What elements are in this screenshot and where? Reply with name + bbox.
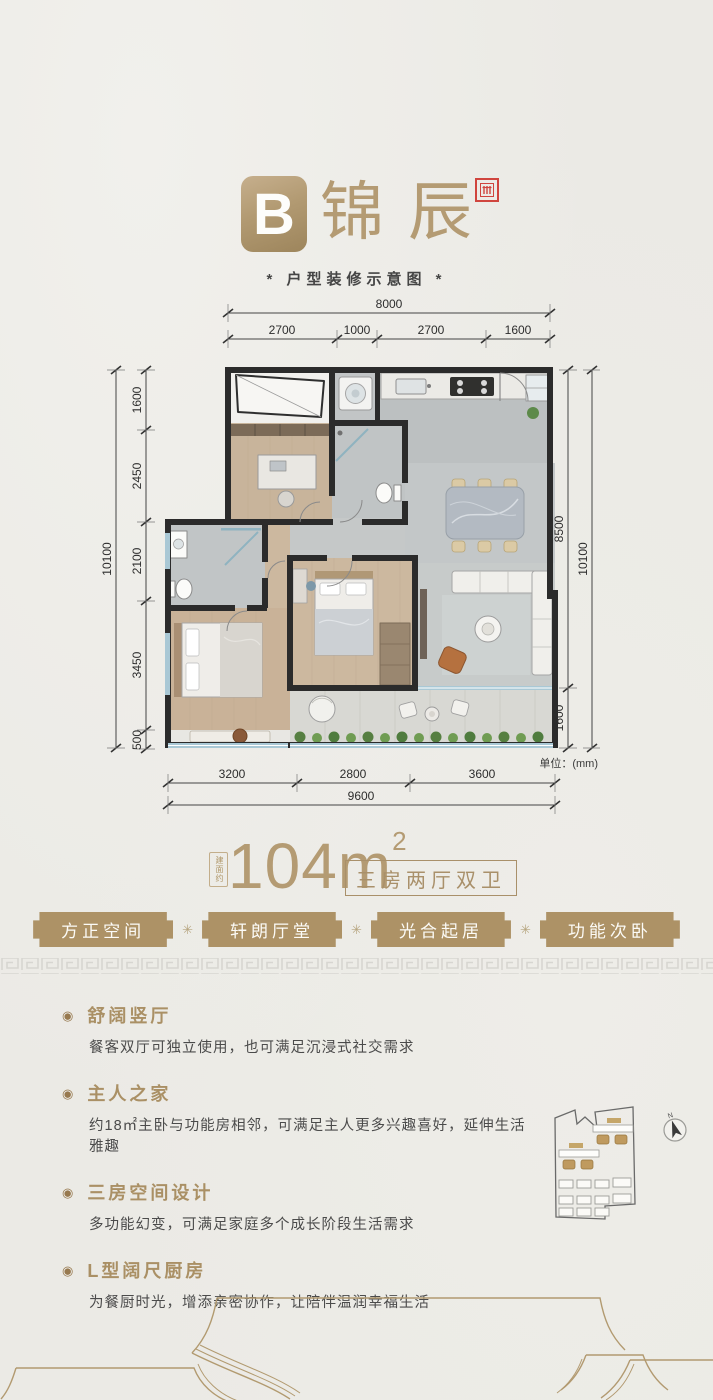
asterisk-separator: ✳	[351, 922, 362, 938]
svg-text:2800: 2800	[340, 767, 367, 781]
layout-type-box: 三房两厅双卫	[345, 860, 517, 896]
bullet-icon: ◉	[62, 1009, 73, 1022]
svg-text:3450: 3450	[130, 651, 144, 678]
feature-item: ◉ 主人之家 约18㎡主卧与功能房相邻，可满足主人更多兴趣喜好，延伸生活雅趣	[62, 1080, 532, 1156]
seal-icon	[475, 178, 499, 202]
svg-text:1600: 1600	[552, 704, 566, 731]
svg-text:1600: 1600	[130, 386, 144, 413]
svg-text:500: 500	[130, 730, 144, 750]
bullet-icon: ◉	[62, 1087, 73, 1100]
roofline-decoration	[0, 1285, 713, 1400]
svg-text:10100: 10100	[576, 542, 590, 576]
svg-text:9600: 9600	[348, 789, 375, 803]
svg-text:2700: 2700	[418, 323, 445, 337]
floorplan-svg: 8000 2700 1000 2700 1600 10100 1600 2450…	[100, 293, 600, 818]
siteplan-svg: N	[535, 1088, 707, 1240]
feature-title: 三房空间设计	[87, 1179, 213, 1205]
dining-table	[446, 479, 524, 552]
desk	[258, 455, 316, 489]
toilet	[376, 483, 392, 503]
tag-guanghe: 光合起居	[371, 912, 511, 947]
stove	[450, 377, 494, 396]
page-title: 锦辰	[320, 170, 496, 254]
asterisk-separator: ✳	[182, 922, 193, 938]
feature-item: ◉ 舒阔竖厅 餐客双厅可独立使用，也可满足沉浸式社交需求	[62, 1002, 532, 1057]
bed-secondary	[315, 571, 373, 655]
highlighted-buildings	[559, 1118, 633, 1169]
feature-desc: 约18㎡主卧与功能房相邻，可满足主人更多兴趣喜好，延伸生活雅趣	[89, 1114, 532, 1156]
svg-text:2700: 2700	[269, 323, 296, 337]
svg-text:1000: 1000	[344, 323, 371, 337]
asterisk-separator: ✳	[520, 922, 531, 938]
subtitle: * 户型装修示意图 *	[0, 268, 713, 289]
selling-point-tags: 方正空间 ✳ 轩朗厅堂 ✳ 光合起居 ✳ 功能次卧	[0, 912, 713, 947]
svg-text:8000: 8000	[376, 297, 403, 311]
ottoman	[233, 729, 247, 743]
tag-gongneng: 功能次卧	[540, 912, 680, 947]
feature-title: L型阔尺厨房	[87, 1257, 206, 1283]
svg-text:2100: 2100	[130, 547, 144, 574]
balcony-plants	[295, 732, 544, 744]
other-buildings	[559, 1178, 631, 1216]
bed-master	[174, 623, 262, 697]
area-sup: 2	[392, 826, 407, 856]
feature-title: 主人之家	[87, 1080, 171, 1106]
svg-text:8500: 8500	[552, 515, 566, 542]
feature-desc: 餐客双厅可独立使用，也可满足沉浸式社交需求	[89, 1036, 532, 1057]
bullet-icon: ◉	[62, 1186, 73, 1199]
tag-xuanlang: 轩朗厅堂	[202, 912, 342, 947]
bullet-icon: ◉	[62, 1264, 73, 1277]
svg-text:3200: 3200	[219, 767, 246, 781]
compass-icon: N	[664, 1111, 686, 1141]
tv-console	[420, 589, 427, 659]
lounge-chair	[309, 696, 335, 722]
wardrobe	[380, 623, 410, 685]
feature-desc: 多功能幻变，可满足家庭多个成长阶段生活需求	[89, 1213, 532, 1234]
unit-type-badge: B	[241, 176, 307, 252]
svg-text:3600: 3600	[469, 767, 496, 781]
unit-note: 单位：(mm)	[539, 756, 598, 770]
meander-border	[0, 956, 713, 976]
svg-text:10100: 10100	[100, 542, 114, 576]
feature-title: 舒阔竖厅	[87, 1002, 171, 1028]
svg-text:N: N	[667, 1112, 674, 1120]
tag-fangzheng: 方正空间	[33, 912, 173, 947]
poster-page: B 锦辰 * 户型装修示意图 *	[0, 0, 713, 1400]
svg-text:2450: 2450	[130, 462, 144, 489]
svg-text:1600: 1600	[505, 323, 532, 337]
area-prefix-tag: 建面约	[209, 852, 228, 887]
feature-item: ◉ 三房空间设计 多功能幻变，可满足家庭多个成长阶段生活需求	[62, 1179, 532, 1234]
